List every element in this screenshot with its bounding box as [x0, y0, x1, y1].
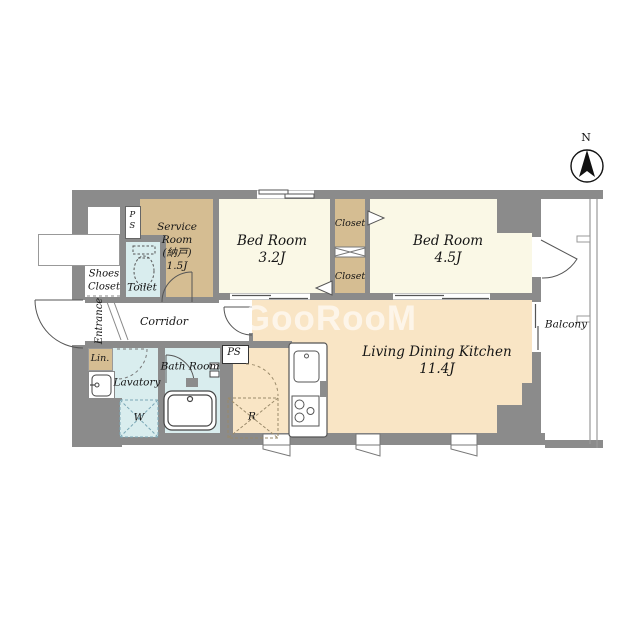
label-linen: Lin.: [91, 353, 110, 365]
wall-segment: [365, 199, 370, 293]
label-corridor: Corridor: [140, 315, 188, 329]
wall-segment: [158, 400, 165, 433]
label-fridge: R: [248, 410, 256, 423]
label-bedroom-small: Bed Room 3.2J: [237, 233, 307, 267]
meter-alcove: [38, 234, 120, 266]
wall-segment: [497, 199, 541, 233]
label-lavatory: Lavatory: [114, 376, 161, 389]
compass-icon: [571, 150, 603, 182]
wall-segment: [72, 433, 545, 445]
balcony-door-gap: [533, 237, 541, 277]
label-line: 3.2J: [237, 250, 307, 267]
floor-plan: Service Room (納戸) 1.5J Bed Room 3.2J Bed…: [0, 0, 640, 640]
entrance-porch: [35, 298, 72, 348]
label-shoes-closet: Shoes Closet: [88, 269, 120, 294]
label-ps-kitchen: PS: [227, 347, 241, 360]
label-washer: W: [134, 411, 145, 424]
label-compass-north: N: [581, 131, 591, 145]
label-closet-top: Closet: [335, 218, 365, 230]
wall-segment: [72, 345, 88, 400]
wall-segment: [72, 266, 85, 300]
label-line: (納戸): [157, 247, 197, 260]
label-ps-top: PS: [127, 210, 138, 232]
wall-segment: [85, 190, 603, 199]
label-line: Living Dining Kitchen: [362, 344, 511, 361]
label-entrance: Entrance: [94, 298, 107, 344]
label-closet-bottom: Closet: [335, 271, 365, 283]
storage-nook: [88, 206, 120, 234]
closet-divider: [335, 247, 365, 257]
label-line: Closet: [88, 281, 120, 294]
label-line: 4.5J: [413, 250, 483, 267]
label-line: Shoes: [88, 269, 120, 282]
label-line: Service: [157, 221, 197, 234]
wall-segment: [522, 383, 541, 405]
label-service-room: Service Room (納戸) 1.5J: [157, 221, 197, 274]
wall-segment: [532, 277, 541, 302]
wall-segment: [213, 199, 219, 303]
label-line: 11.4J: [362, 361, 511, 378]
wall-segment: [532, 352, 541, 383]
label-bedroom-large: Bed Room 4.5J: [413, 233, 483, 267]
watermark: GooRooM: [243, 299, 417, 339]
wall-segment: [497, 405, 541, 437]
wall-segment: [120, 235, 126, 302]
label-line: Bed Room: [413, 233, 483, 250]
label-balcony: Balcony: [545, 318, 587, 331]
window-ldk-balcony: [533, 302, 541, 352]
wall-segment: [72, 207, 88, 234]
label-line: Bed Room: [237, 233, 307, 250]
wall-segment: [158, 348, 165, 400]
label-line: Room: [157, 234, 197, 247]
label-line: 1.5J: [157, 260, 197, 273]
wall-segment: [85, 341, 292, 348]
label-ldk: Living Dining Kitchen 11.4J: [362, 344, 511, 378]
label-toilet: Toilet: [127, 281, 157, 294]
label-bathroom: Bath Room: [161, 360, 220, 373]
wall-segment: [72, 190, 140, 207]
wall-segment: [545, 440, 603, 448]
vanity-counter: [88, 371, 115, 400]
